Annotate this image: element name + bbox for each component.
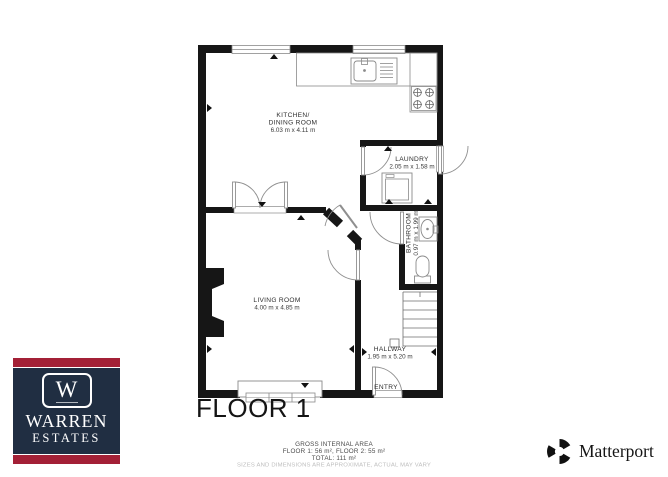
washing-machine-icon bbox=[382, 173, 412, 203]
agency-name: WARREN bbox=[26, 412, 108, 430]
monogram-banner bbox=[56, 402, 78, 403]
floor-areas-line: FLOOR 1: 56 m², FLOOR 2: 55 m² bbox=[283, 448, 386, 455]
floor-title: FLOOR 1 bbox=[196, 393, 311, 423]
laundry-label: LAUNDRY bbox=[395, 156, 429, 163]
provider-logo: Matterport bbox=[546, 438, 654, 465]
laundry-door-icon bbox=[362, 147, 392, 175]
logo-top-stripe bbox=[13, 358, 120, 367]
bathroom-door-icon bbox=[370, 212, 404, 244]
disclaimer-text: SIZES AND DIMENSIONS ARE APPROXIMATE, AC… bbox=[237, 463, 431, 469]
gross-internal-area-title: GROSS INTERNAL AREA bbox=[295, 441, 373, 448]
room-labels: KITCHEN/ DINING ROOM 6.03 m x 4.11 m LAU… bbox=[253, 112, 434, 391]
bathroom-label: BATHROOM bbox=[406, 213, 413, 253]
hallway-dimensions: 1.95 m x 5.20 m bbox=[367, 354, 412, 361]
provider-name: Matterport bbox=[579, 441, 654, 462]
laundry-dimensions: 2.05 m x 1.58 m bbox=[389, 164, 434, 171]
agency-monogram: W bbox=[56, 378, 78, 401]
logo-body: W WARREN ESTATES bbox=[13, 367, 120, 455]
hallway-label: HALLWAY bbox=[374, 346, 407, 353]
kitchen-dimensions: 6.03 m x 4.11 m bbox=[271, 127, 316, 134]
stove-icon bbox=[412, 87, 437, 111]
sink-window bbox=[353, 46, 405, 54]
bathroom-dimensions: 0.97 m x 1.99 m bbox=[413, 210, 420, 255]
entry-threshold bbox=[374, 391, 402, 398]
matterport-icon bbox=[546, 438, 573, 465]
fireplace-alcove bbox=[212, 284, 224, 321]
footer-area-info: GROSS INTERNAL AREA FLOOR 1: 56 m², FLOO… bbox=[237, 441, 431, 469]
bathroom-sink-icon bbox=[419, 217, 438, 241]
living-room-door-icon bbox=[328, 250, 360, 280]
total-area-line: TOTAL: 111 m² bbox=[312, 455, 356, 462]
toilet-icon bbox=[415, 256, 431, 283]
kitchen-label-line2: DINING ROOM bbox=[269, 120, 318, 127]
fixtures bbox=[297, 53, 439, 347]
logo-bottom-stripe bbox=[13, 455, 120, 464]
agency-logo: W WARREN ESTATES bbox=[13, 358, 120, 468]
entry-label: ENTRY bbox=[374, 384, 398, 391]
living-room-dimensions: 4.00 m x 4.85 m bbox=[254, 305, 299, 312]
kitchen-label-line1: KITCHEN/ bbox=[276, 112, 309, 119]
living-room-label: LIVING ROOM bbox=[253, 297, 300, 304]
doors bbox=[233, 146, 469, 395]
stairs-icon bbox=[390, 292, 437, 347]
agency-monogram-box: W bbox=[42, 373, 92, 408]
kitchen-sink-icon bbox=[351, 58, 397, 84]
kitchen-window bbox=[232, 46, 290, 54]
agency-name-sub: ESTATES bbox=[32, 432, 101, 445]
